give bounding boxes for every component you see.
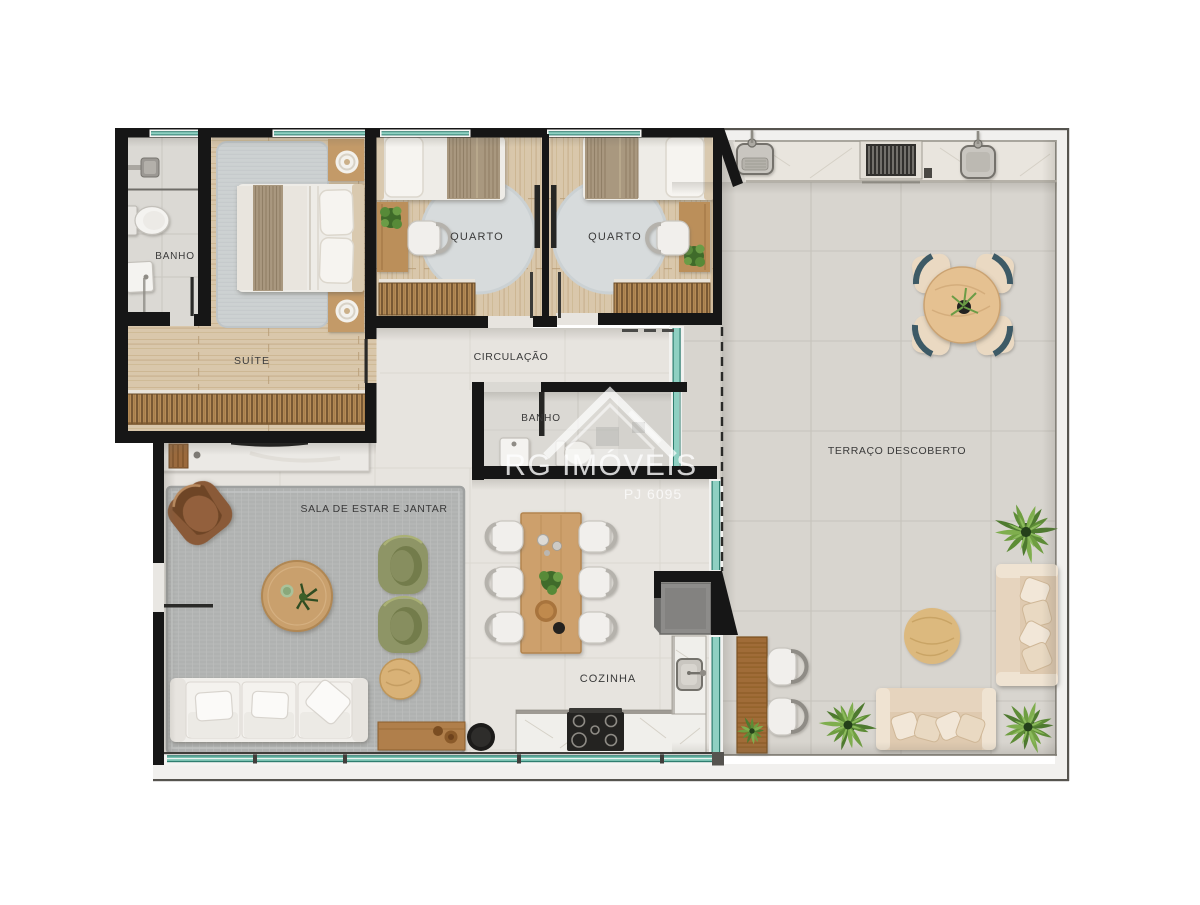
svg-text:QUARTO: QUARTO xyxy=(588,231,642,243)
svg-text:BANHO: BANHO xyxy=(155,251,195,262)
svg-text:QUARTO: QUARTO xyxy=(450,231,504,243)
svg-text:SUÍTE: SUÍTE xyxy=(234,354,270,367)
svg-text:SALA DE ESTAR E JANTAR: SALA DE ESTAR E JANTAR xyxy=(300,503,447,515)
svg-text:PJ 6095: PJ 6095 xyxy=(624,486,682,502)
svg-text:TERRAÇO DESCOBERTO: TERRAÇO DESCOBERTO xyxy=(828,445,966,457)
svg-text:BANHO: BANHO xyxy=(521,413,561,424)
svg-text:RG IMÓVEIS: RG IMÓVEIS xyxy=(504,449,697,482)
svg-text:COZINHA: COZINHA xyxy=(580,673,637,685)
svg-text:CIRCULAÇÃO: CIRCULAÇÃO xyxy=(474,350,549,363)
